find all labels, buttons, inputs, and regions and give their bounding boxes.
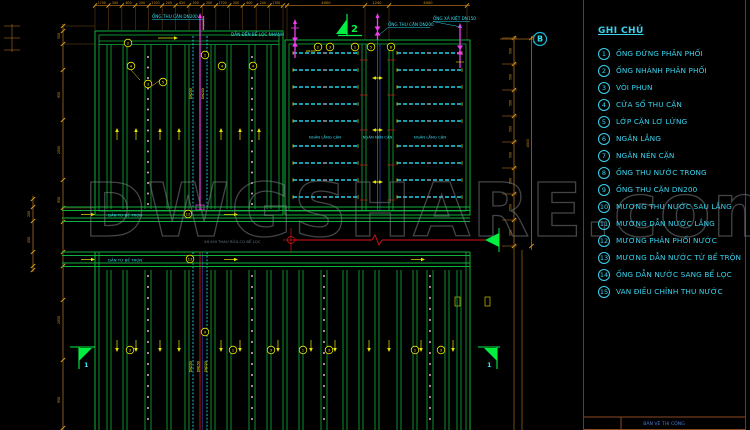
legend-item-label: VAN ĐIỀU CHỈNH THU NƯỚC bbox=[616, 287, 723, 296]
dim-value: 550 bbox=[57, 33, 61, 39]
legend-item: 2ỐNG NHÁNH PHÂN PHỐI bbox=[598, 62, 744, 79]
spray-dot bbox=[429, 308, 431, 310]
dim-value: 2050 bbox=[57, 146, 61, 154]
spray-dot bbox=[323, 374, 325, 376]
legend-item: 12MƯƠNG PHÂN PHỐI NƯỚC bbox=[598, 232, 744, 249]
pipe-dot bbox=[429, 120, 431, 122]
spray-dot bbox=[251, 275, 253, 277]
pipe-dot bbox=[429, 86, 431, 88]
legend-item-label: NGĂN LẮNG bbox=[616, 134, 661, 143]
spray-dot bbox=[323, 297, 325, 299]
dim-value: 4000 bbox=[321, 1, 331, 5]
legend-item-label: ỐNG ĐỨNG PHÂN PHỐI bbox=[616, 49, 703, 58]
spray-dot bbox=[429, 385, 431, 387]
dim-value: 500 bbox=[509, 48, 513, 54]
flow-arrow-head bbox=[219, 348, 223, 352]
spray-dot bbox=[251, 418, 253, 420]
pipe-arrow-head bbox=[198, 13, 202, 18]
dim-value: 950 bbox=[57, 92, 61, 98]
dn-tag: DN200 bbox=[306, 49, 316, 53]
legend-item-label: MƯƠNG DẪN NƯỚC TỪ BỂ TRỘN bbox=[616, 253, 741, 262]
dim-value: 1700 bbox=[98, 1, 106, 5]
pipe-arrow-head bbox=[376, 13, 380, 18]
spray-dot bbox=[323, 308, 325, 310]
legend-panel: GHI CHÚ 1ỐNG ĐỨNG PHÂN PHỐI2ỐNG NHÁNH PH… bbox=[598, 26, 744, 300]
label-zone-left: NGĂN LẮNG CẶN bbox=[309, 135, 341, 140]
section-1-flag bbox=[79, 348, 92, 361]
flow-arrow-head bbox=[421, 258, 425, 262]
pipe-dot bbox=[429, 69, 431, 71]
legend-item: 10MƯƠNG THU NƯỚC SAU LẮNG bbox=[598, 198, 744, 215]
dim-value: 500 bbox=[509, 126, 513, 132]
dim-value: 200 bbox=[139, 1, 145, 5]
spray-dot bbox=[323, 396, 325, 398]
spray-dot bbox=[147, 67, 149, 69]
spray-dot bbox=[251, 286, 253, 288]
legend-item-number: 9 bbox=[598, 184, 610, 196]
dim-value: 600 bbox=[246, 1, 252, 5]
label-leader bbox=[379, 28, 388, 36]
spray-dot bbox=[251, 161, 253, 163]
spray-dot bbox=[251, 396, 253, 398]
pipe-dot bbox=[325, 145, 327, 147]
dim-value: 1240 bbox=[372, 1, 382, 5]
legend-item-label: CỬA SỔ THU CẶN bbox=[616, 100, 682, 109]
legend-item-number: 10 bbox=[598, 201, 610, 213]
spray-dot bbox=[147, 56, 149, 58]
spray-dot bbox=[251, 363, 253, 365]
dim-tag bbox=[485, 297, 490, 306]
flow-arrow-head bbox=[134, 128, 138, 132]
label-to-filter: DẪN ĐẾN BỂ LỌC NHANH bbox=[231, 31, 284, 37]
legend-item: 5LỚP CẶN LƠ LỬNG bbox=[598, 113, 744, 130]
dim-value: 950 bbox=[57, 397, 61, 403]
dim-value: 500 bbox=[509, 100, 513, 106]
dim-value: 500 bbox=[193, 1, 199, 5]
flow-arrow-head bbox=[387, 348, 391, 352]
spray-dot bbox=[147, 140, 149, 142]
label-wash-note: XẢ KHI THAU RỬA CỌ BỂ LỌC bbox=[204, 239, 261, 244]
dim-value: 200 bbox=[206, 1, 212, 5]
pipe-dot bbox=[429, 162, 431, 164]
spray-dot bbox=[147, 407, 149, 409]
grid-marker-b: B bbox=[537, 35, 543, 44]
spray-dot bbox=[429, 330, 431, 332]
legend-item-label: VÒI PHUN bbox=[616, 83, 653, 92]
spray-dot bbox=[147, 130, 149, 132]
legend-item-number: 7 bbox=[598, 150, 610, 162]
flow-arrow-head bbox=[115, 128, 119, 132]
spray-dot bbox=[147, 151, 149, 153]
spray-dot bbox=[429, 352, 431, 354]
legend-item-label: MƯƠNG THU NƯỚC SAU LẮNG bbox=[616, 202, 732, 211]
flow-arrow-head bbox=[238, 348, 242, 352]
spray-dot bbox=[323, 418, 325, 420]
dim-value: 200 bbox=[27, 211, 31, 217]
spray-dot bbox=[429, 286, 431, 288]
flow-arrow-head bbox=[419, 348, 423, 352]
spray-dot bbox=[429, 275, 431, 277]
legend-item-number: 5 bbox=[598, 116, 610, 128]
section-1-right-number: 1 bbox=[487, 361, 492, 369]
label-leader bbox=[433, 22, 461, 28]
spray-dot bbox=[323, 363, 325, 365]
spray-dot bbox=[147, 308, 149, 310]
dim-value: 200 bbox=[260, 1, 266, 5]
callout-leader bbox=[131, 70, 140, 80]
valve-icon bbox=[375, 27, 381, 32]
dn-tag: DN200 bbox=[189, 88, 193, 99]
dim-value: 1700 bbox=[151, 1, 159, 5]
spray-dot bbox=[147, 119, 149, 121]
flow-arrow-head bbox=[158, 348, 162, 352]
flow-arrow-head bbox=[91, 258, 95, 262]
spray-dot bbox=[251, 330, 253, 332]
legend-item: 13MƯƠNG DẪN NƯỚC TỪ BỂ TRỘN bbox=[598, 249, 744, 266]
section-1-flag bbox=[484, 348, 497, 361]
legend-item-label: MƯƠNG DẪN NƯỚC LẮNG bbox=[616, 219, 715, 228]
flow-arrow-head bbox=[234, 258, 238, 262]
spray-dot bbox=[251, 98, 253, 100]
label-channel-lower: DẪN TỪ BỂ TRỘN bbox=[108, 258, 142, 263]
spray-dot bbox=[251, 109, 253, 111]
spray-dot bbox=[147, 374, 149, 376]
label-pipe-center: ỐNG THU CẶN DN200 bbox=[388, 22, 434, 27]
legend-item-label: LỚP CẶN LƠ LỬNG bbox=[616, 117, 687, 126]
title-block-text: BẢN VẼ THI CÔNG bbox=[643, 419, 685, 427]
legend-item: 7NGĂN NÉN CẶN bbox=[598, 147, 744, 164]
spray-dot bbox=[251, 56, 253, 58]
dim-value: 1700 bbox=[219, 1, 227, 5]
dim-tag bbox=[455, 297, 460, 306]
spray-dot bbox=[429, 341, 431, 343]
label-zone-right: NGĂN LẮNG CẶN bbox=[414, 135, 446, 140]
spray-dot bbox=[251, 297, 253, 299]
spray-dot bbox=[147, 275, 149, 277]
spray-dot bbox=[147, 385, 149, 387]
legend-item: 1ỐNG ĐỨNG PHÂN PHỐI bbox=[598, 45, 744, 62]
section-1-left-number: 1 bbox=[84, 361, 89, 369]
spray-dot bbox=[429, 407, 431, 409]
legend-item: 4CỬA SỔ THU CẶN bbox=[598, 96, 744, 113]
legend-item-label: ỐNG NHÁNH PHÂN PHỐI bbox=[616, 66, 707, 75]
legend-items: 1ỐNG ĐỨNG PHÂN PHỐI2ỐNG NHÁNH PHÂN PHỐI3… bbox=[598, 45, 744, 300]
legend-item: 8ỐNG THU NƯỚC TRONG bbox=[598, 164, 744, 181]
spray-dot bbox=[251, 407, 253, 409]
dim-value: 1700 bbox=[272, 1, 280, 5]
dim-value: 450 bbox=[27, 237, 31, 243]
flow-arrow-head bbox=[333, 348, 337, 352]
legend-item-number: 3 bbox=[598, 82, 610, 94]
flow-arrow-head bbox=[115, 348, 119, 352]
dim-value: 200 bbox=[112, 1, 118, 5]
spray-dot bbox=[323, 286, 325, 288]
spray-dot bbox=[147, 352, 149, 354]
flow-arrow-head bbox=[238, 128, 242, 132]
spray-dot bbox=[251, 319, 253, 321]
legend-item-label: ỐNG DẪN NƯỚC SANG BỂ LỌC bbox=[616, 270, 732, 279]
spray-dot bbox=[429, 374, 431, 376]
flow-arrow-head bbox=[367, 348, 371, 352]
spray-dot bbox=[147, 161, 149, 163]
spray-dot bbox=[323, 330, 325, 332]
spray-dot bbox=[251, 374, 253, 376]
legend-item-number: 11 bbox=[598, 218, 610, 230]
legend-item-number: 8 bbox=[598, 167, 610, 179]
spray-dot bbox=[429, 363, 431, 365]
flow-arrow-head bbox=[257, 128, 261, 132]
spray-dot bbox=[429, 297, 431, 299]
dim-value: 200 bbox=[233, 1, 239, 5]
dn-tag: DN200 bbox=[204, 361, 208, 372]
spray-dot bbox=[251, 119, 253, 121]
section-2-number: 2 bbox=[351, 24, 358, 35]
flow-arrow-head bbox=[174, 36, 178, 40]
spray-dot bbox=[429, 396, 431, 398]
pipe-dot bbox=[325, 162, 327, 164]
spray-dot bbox=[147, 109, 149, 111]
spray-dot bbox=[147, 363, 149, 365]
legend-item: 11MƯƠNG DẪN NƯỚC LẮNG bbox=[598, 215, 744, 232]
spray-dot bbox=[147, 286, 149, 288]
dim-value: 4500 bbox=[526, 139, 530, 148]
flow-arrow-head bbox=[379, 128, 383, 132]
pipe-arrow-head bbox=[458, 23, 462, 28]
spray-dot bbox=[323, 352, 325, 354]
valve-icon bbox=[457, 46, 463, 51]
legend-item-label: MƯƠNG PHÂN PHỐI NƯỚC bbox=[616, 236, 717, 245]
dn-tag: DN200 bbox=[201, 88, 205, 99]
dim-value: 620 bbox=[179, 1, 185, 5]
dim-value: 950 bbox=[57, 197, 61, 203]
legend-item-number: 15 bbox=[598, 286, 610, 298]
spray-dot bbox=[251, 341, 253, 343]
spray-dot bbox=[251, 88, 253, 90]
flow-arrow-head bbox=[158, 128, 162, 132]
dim-value: 4000 bbox=[423, 1, 433, 5]
spray-dot bbox=[147, 330, 149, 332]
legend-item-label: ỐNG THU NƯỚC TRONG bbox=[616, 168, 707, 177]
spray-dot bbox=[251, 385, 253, 387]
spray-dot bbox=[251, 352, 253, 354]
flow-arrow-head bbox=[379, 76, 383, 80]
legend-item: 3VÒI PHUN bbox=[598, 79, 744, 96]
dim-value: 2050 bbox=[57, 316, 61, 324]
dn-tag: DN150 bbox=[197, 361, 201, 372]
flow-arrow-head bbox=[276, 348, 280, 352]
spray-dot bbox=[251, 130, 253, 132]
label-zone-center: NGĂN NÉN CẶN bbox=[363, 135, 393, 140]
spray-dot bbox=[323, 275, 325, 277]
flow-arrow-head bbox=[177, 348, 181, 352]
spray-dot bbox=[323, 319, 325, 321]
pipe-dot bbox=[429, 52, 431, 54]
legend-item-number: 4 bbox=[598, 99, 610, 111]
spray-dot bbox=[323, 407, 325, 409]
spray-dot bbox=[147, 418, 149, 420]
legend-item-number: 6 bbox=[598, 133, 610, 145]
callout-number: 13 bbox=[188, 256, 193, 261]
spray-dot bbox=[429, 319, 431, 321]
pipe-dot bbox=[429, 145, 431, 147]
legend-item: 14ỐNG DẪN NƯỚC SANG BỂ LỌC bbox=[598, 266, 744, 283]
spray-dot bbox=[323, 341, 325, 343]
legend-item-number: 13 bbox=[598, 252, 610, 264]
spray-dot bbox=[251, 77, 253, 79]
legend-item: 6NGĂN LẮNG bbox=[598, 130, 744, 147]
label-pipe-drain: ỐNG XẢ KIỆT DN150 bbox=[433, 16, 476, 21]
flow-arrow-head bbox=[309, 348, 313, 352]
pipe-dot bbox=[325, 86, 327, 88]
flow-arrow-head bbox=[177, 128, 181, 132]
section-2-flag bbox=[336, 19, 347, 34]
spray-dot bbox=[147, 341, 149, 343]
legend-item: 15VAN ĐIỀU CHỈNH THU NƯỚC bbox=[598, 283, 744, 300]
legend-item-label: ỐNG THU CẶN DN200 bbox=[616, 185, 697, 194]
legend-item-number: 1 bbox=[598, 48, 610, 60]
spray-dot bbox=[251, 308, 253, 310]
label-pipe-top-left: ỐNG THU CẶN DN200 bbox=[152, 14, 198, 19]
legend-item-label: NGĂN NÉN CẶN bbox=[616, 151, 674, 160]
spray-dot bbox=[147, 98, 149, 100]
pipe-dot bbox=[325, 120, 327, 122]
pipe-dot bbox=[429, 103, 431, 105]
pipe-dot bbox=[325, 52, 327, 54]
dn-tag: DN200 bbox=[189, 361, 193, 372]
flow-arrow-head bbox=[451, 348, 455, 352]
legend-item: 9ỐNG THU CẶN DN200 bbox=[598, 181, 744, 198]
spray-dot bbox=[147, 396, 149, 398]
dim-value: 600 bbox=[126, 1, 132, 5]
spray-dot bbox=[147, 77, 149, 79]
pipe-dot bbox=[325, 69, 327, 71]
flow-arrow-head bbox=[134, 348, 138, 352]
pipe-dot bbox=[325, 103, 327, 105]
spray-dot bbox=[251, 140, 253, 142]
cad-sheet: 1700200600200170020062050020017002006002… bbox=[0, 0, 750, 430]
spray-dot bbox=[251, 151, 253, 153]
legend-item-number: 12 bbox=[598, 235, 610, 247]
pipe-arrow-head bbox=[293, 19, 297, 24]
spray-dot bbox=[147, 297, 149, 299]
legend-title: GHI CHÚ bbox=[598, 26, 744, 36]
legend-item-number: 14 bbox=[598, 269, 610, 281]
legend-item-number: 2 bbox=[598, 65, 610, 77]
dim-value: 500 bbox=[509, 152, 513, 158]
spray-dot bbox=[323, 385, 325, 387]
dim-value: 200 bbox=[166, 1, 172, 5]
flow-arrow-head bbox=[219, 128, 223, 132]
spray-dot bbox=[147, 319, 149, 321]
spray-dot bbox=[429, 418, 431, 420]
dim-value: 500 bbox=[509, 74, 513, 80]
label-channel-upper: DẪN TỪ BỂ TRỘN bbox=[108, 213, 142, 218]
